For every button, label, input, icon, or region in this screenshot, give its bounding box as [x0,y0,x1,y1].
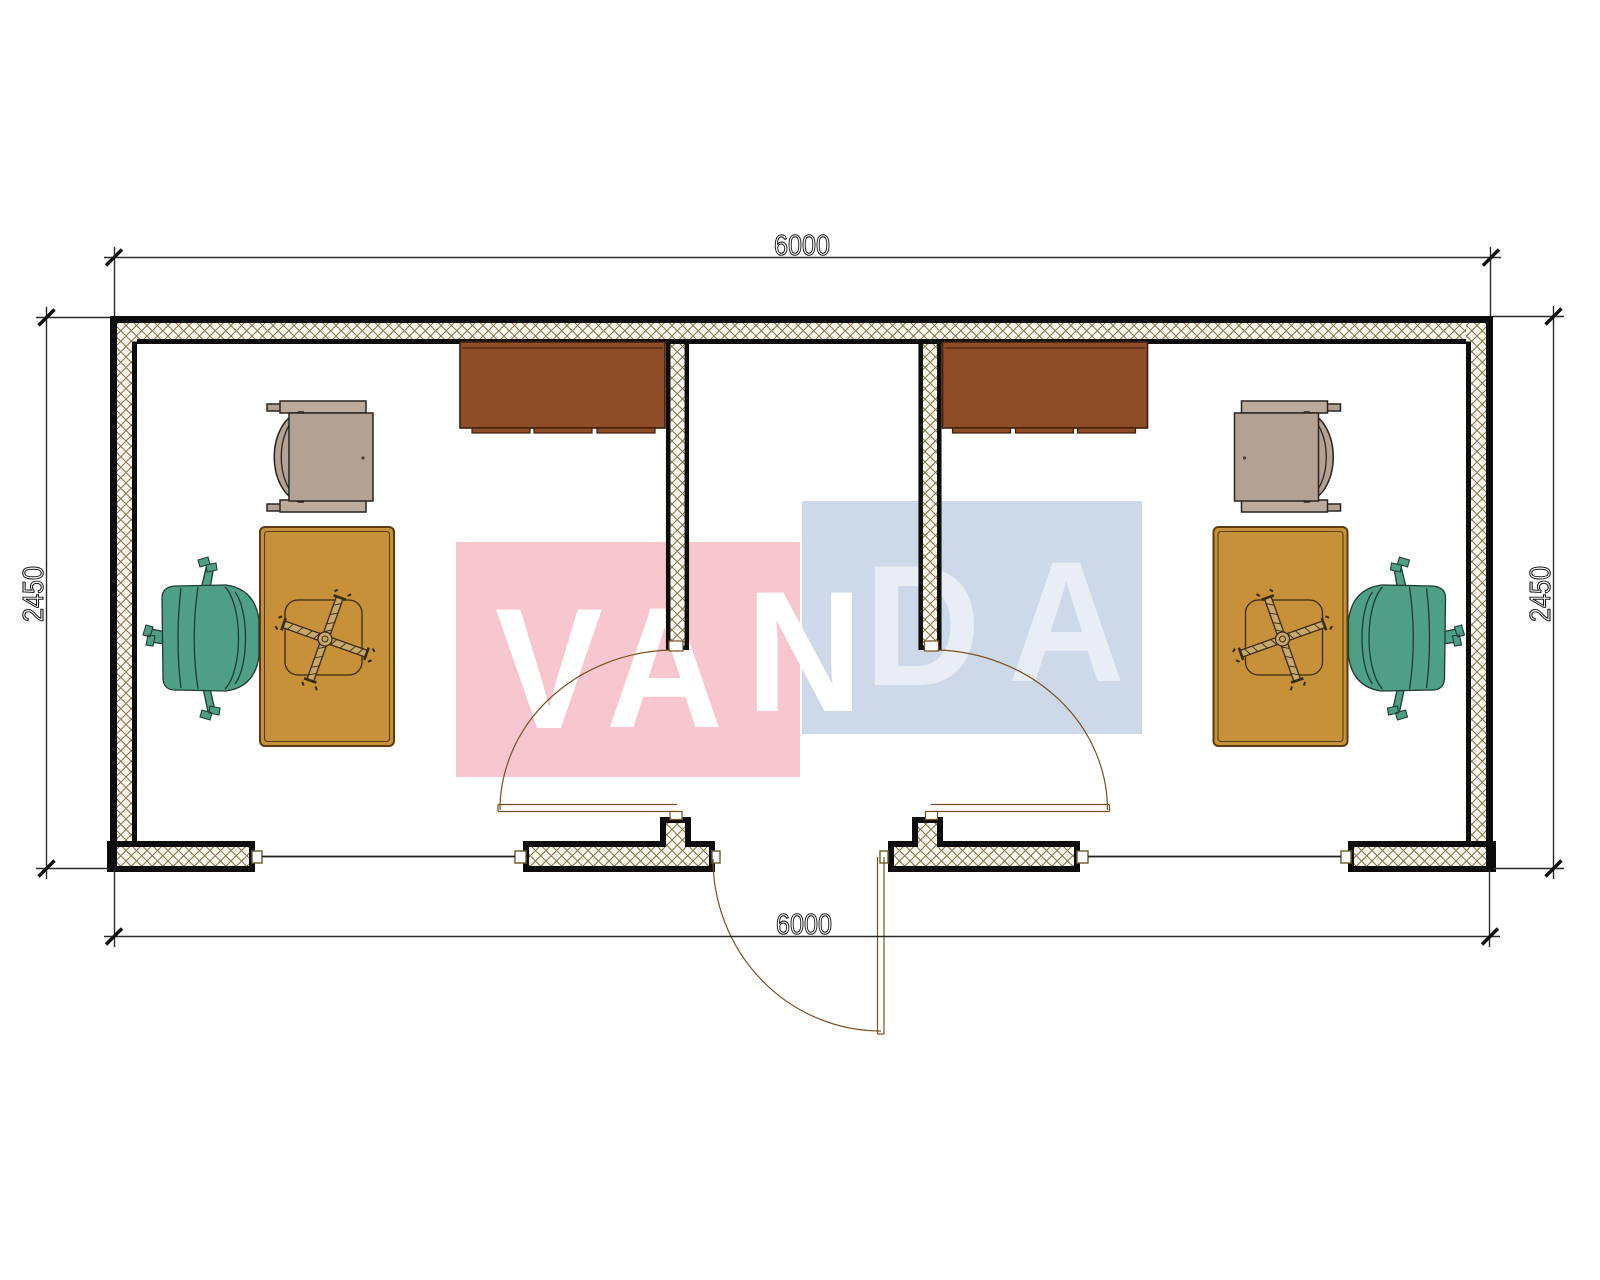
svg-text:V: V [495,573,603,765]
svg-text:6000: 6000 [774,230,830,262]
svg-text:2450: 2450 [18,566,50,622]
svg-text:N: N [746,556,863,748]
svg-text:6000: 6000 [776,909,832,941]
svg-text:2450: 2450 [1525,566,1557,622]
svg-text:A: A [1008,526,1125,718]
svg-text:A: A [606,572,723,764]
